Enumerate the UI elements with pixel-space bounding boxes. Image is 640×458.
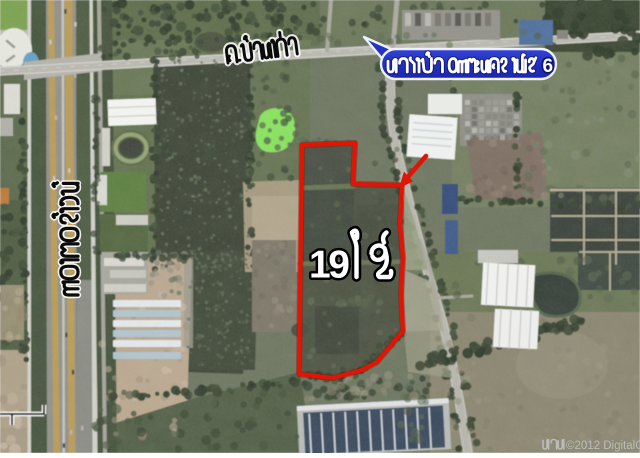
svg-text:©2012 DigitalGlo: ©2012 DigitalGlo (566, 440, 640, 452)
svg-text:19: 19 (309, 244, 349, 287)
svg-text:6: 6 (542, 56, 553, 77)
